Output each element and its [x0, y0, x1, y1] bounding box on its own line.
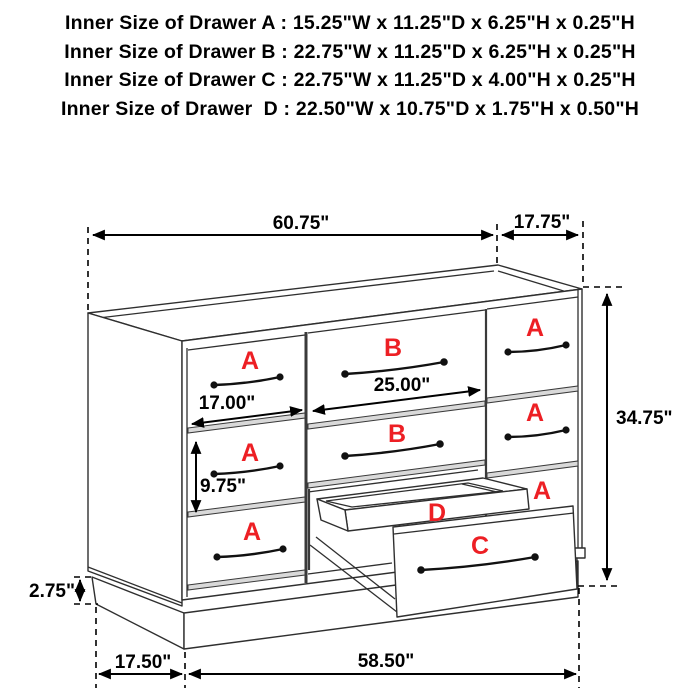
base-side-depth-label: 17.50": [115, 652, 172, 673]
drawer-letter-d: D: [428, 499, 446, 527]
cabinet-left-side-panel: [88, 313, 182, 606]
base-front-width-label: 58.50": [358, 651, 415, 672]
drawer-letter-a-right-3: A: [533, 477, 551, 505]
drawer-letter-b-2: B: [388, 420, 406, 448]
drawer-letter-a-left-2: A: [241, 439, 259, 467]
drawer-letter-c: C: [471, 532, 489, 560]
dresser-dimension-diagram: A A A A A A B B C D 60.75" 17.7: [0, 0, 700, 700]
top-depth-label: 17.75": [514, 212, 571, 233]
drawer-a-width-label: 17.00": [199, 393, 256, 414]
drawer-letter-b-1: B: [384, 334, 402, 362]
base-height-label: 2.75": [29, 581, 75, 602]
drawer-letter-a-right-1: A: [526, 314, 544, 342]
drawer-b-width-label: 25.00": [374, 375, 431, 396]
drawer-letter-a-right-2: A: [526, 399, 544, 427]
page: { "header": { "lines": [ "Inner Size of …: [0, 0, 700, 700]
drawer-letter-a-left-1: A: [241, 347, 259, 375]
overall-width-label: 60.75": [273, 213, 330, 234]
drawer-letter-a-left-3: A: [243, 518, 261, 546]
overall-height-label: 34.75": [616, 408, 673, 429]
drawer-a-height-label: 9.75": [200, 476, 246, 497]
